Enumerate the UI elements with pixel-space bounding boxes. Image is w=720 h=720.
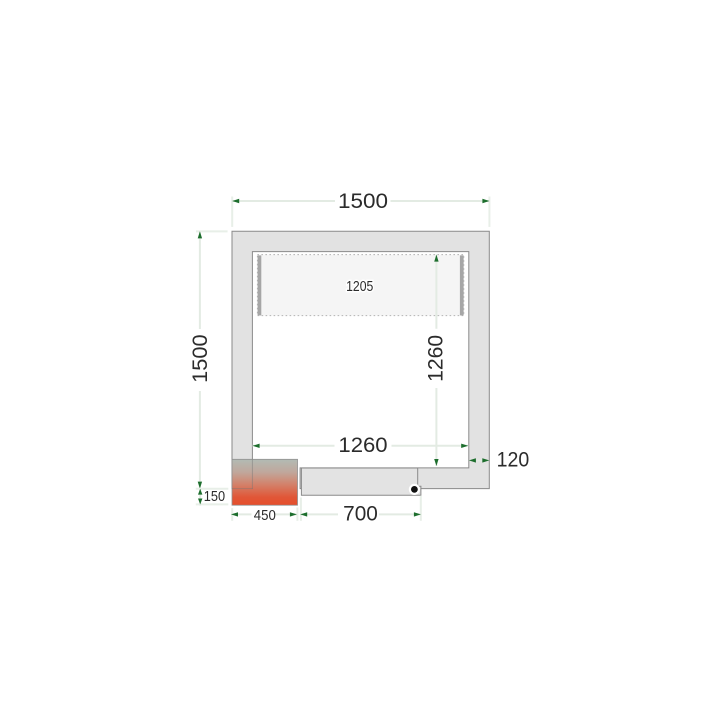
- svg-text:1205: 1205: [346, 279, 373, 295]
- svg-text:1500: 1500: [338, 190, 388, 213]
- svg-text:120: 120: [497, 448, 530, 471]
- svg-text:1260: 1260: [423, 335, 447, 382]
- svg-text:1260: 1260: [338, 434, 387, 457]
- svg-text:1500: 1500: [188, 334, 212, 383]
- svg-text:150: 150: [204, 489, 225, 505]
- svg-text:450: 450: [254, 508, 276, 524]
- svg-text:700: 700: [343, 502, 378, 525]
